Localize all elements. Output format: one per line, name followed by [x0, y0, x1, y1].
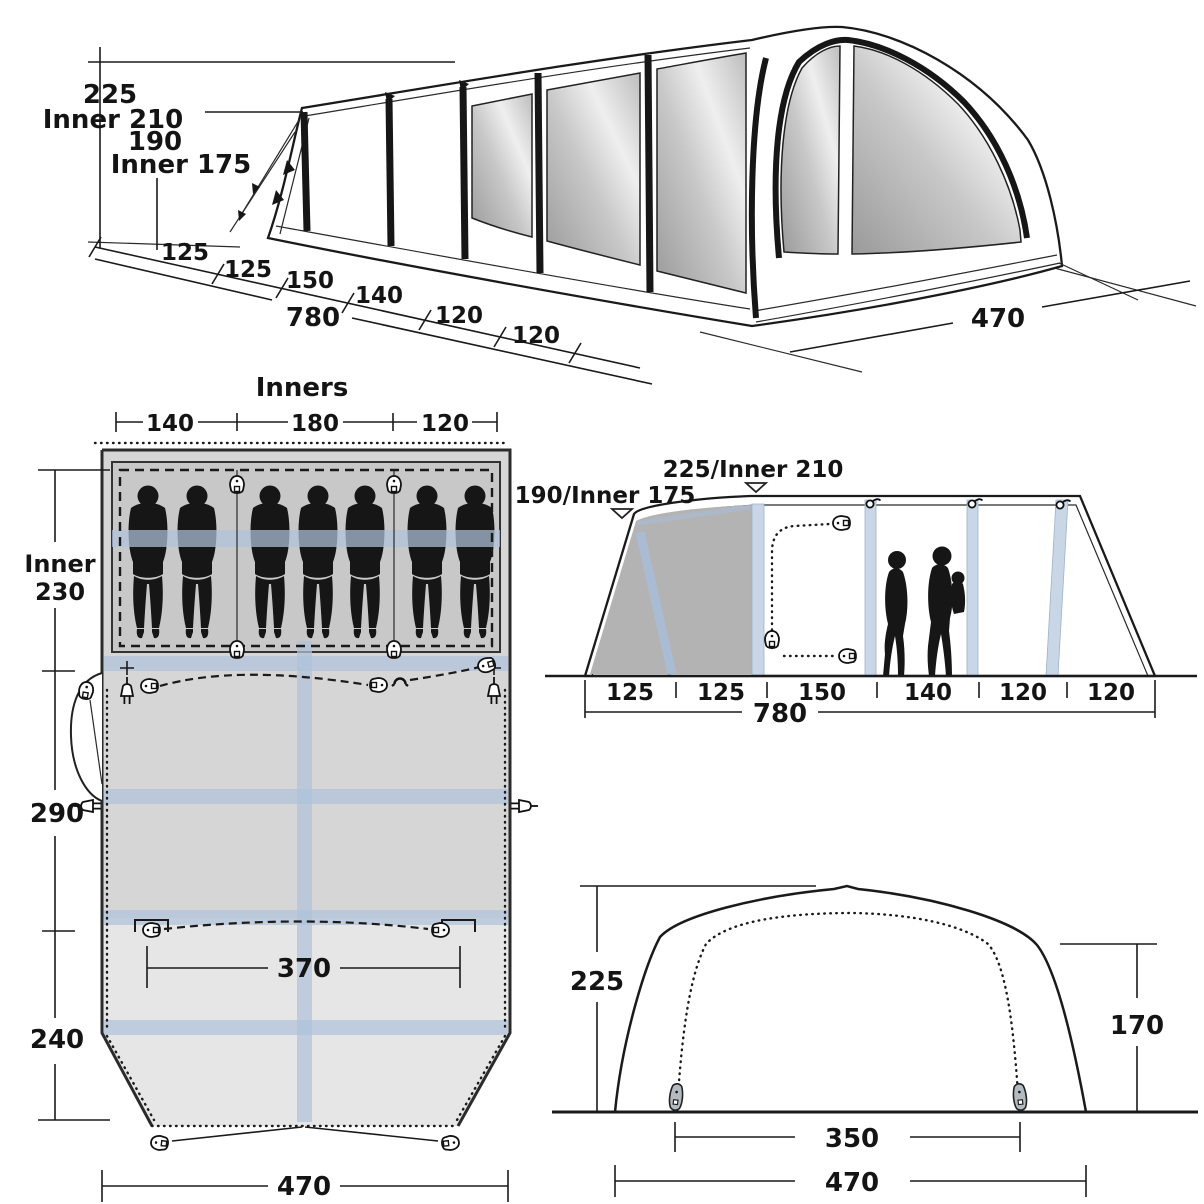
dim-label-inner-width: 120: [421, 411, 469, 437]
front-elevation-view: 225 170 350 470: [552, 886, 1198, 1198]
dim-label-living-depth: 290: [30, 799, 84, 829]
zipper-pull-icon: [143, 923, 160, 937]
side-window: [547, 73, 640, 265]
dim-label-height: 225: [570, 967, 624, 997]
dim-label-segment: 120: [512, 323, 560, 349]
side-window: [657, 53, 746, 293]
zipper-pull-icon: [833, 516, 850, 530]
dim-label-total-length: 780: [753, 699, 807, 729]
dim-label-front-height-inner: Inner 175: [111, 150, 251, 180]
air-beam: [538, 73, 540, 273]
zipper-pull-icon: [432, 923, 449, 937]
air-beam: [389, 99, 391, 246]
side-elevation-view: 190/Inner 175 225/Inner 210 125 125 150 …: [515, 457, 1197, 729]
air-beam-band: [967, 500, 978, 676]
power-plug-icon: [511, 800, 538, 812]
dim-label-segment: 120: [1087, 680, 1135, 706]
air-beam: [304, 112, 307, 231]
dim-label-inner-depth: Inner: [24, 550, 95, 578]
zipper-pull-icon: [387, 641, 401, 658]
ground-edge-line: [700, 332, 862, 372]
dim-label-wall-height: 170: [1110, 1011, 1164, 1041]
zipper-pull-icon: [441, 1135, 459, 1151]
front-zip-line: [172, 1127, 438, 1141]
dim-label-length: 780: [286, 303, 340, 333]
dim-label-porch-depth: 240: [30, 1025, 84, 1055]
dim-label-width: 470: [971, 304, 1025, 334]
dim-label-segment: 125: [224, 257, 272, 283]
zipper-pull-icon: [150, 1135, 168, 1151]
dim-label-total-width: 470: [277, 1172, 331, 1202]
dim-label-total-width: 470: [825, 1168, 879, 1198]
beam-band: [112, 530, 500, 547]
air-beam-band: [752, 504, 764, 676]
side-window: [472, 94, 532, 237]
label-front-peak-height: 190/Inner 175: [515, 483, 696, 509]
dim-label-segment: 140: [355, 283, 403, 309]
air-beam-band: [865, 500, 876, 676]
dim-label-segment: 120: [999, 680, 1047, 706]
zipper-pull-icon: [387, 476, 401, 493]
zipper-pull-icon: [839, 649, 856, 663]
dim-label-segment: 125: [161, 240, 209, 266]
label-main-peak-height: 225/Inner 210: [663, 457, 844, 483]
guy-arrow-icon: [238, 210, 246, 221]
dim-label-inner-width: 140: [146, 411, 194, 437]
zipper-pull-icon: [765, 631, 779, 648]
zipper-pull-icon: [230, 476, 244, 493]
perspective-view: 225 Inner 210 190 Inner 175 125 125 150 …: [43, 27, 1196, 384]
diagram-canvas: 225 Inner 210 190 Inner 175 125 125 150 …: [0, 0, 1204, 1204]
pointer-triangle-icon: [746, 483, 766, 492]
tent-specification-diagram: 225 Inner 210 190 Inner 175 125 125 150 …: [0, 0, 1204, 1204]
dim-label-door-width: 370: [277, 954, 331, 984]
dim-label-segment: 125: [697, 680, 745, 706]
front-silhouette: [615, 886, 1086, 1112]
zipper-pull-icon: [230, 641, 244, 658]
air-beam: [463, 87, 465, 259]
air-beam: [648, 55, 650, 292]
zipper-pull-icon: [370, 678, 387, 692]
pointer-triangle-icon: [612, 509, 632, 518]
zipper-pull-icon: [141, 679, 158, 693]
beam-band-vertical: [297, 641, 312, 1122]
dim-label-segment: 150: [286, 268, 334, 294]
dim-label-segment: 140: [904, 680, 952, 706]
guy-line: [1059, 263, 1138, 300]
inners-title: Inners: [256, 373, 349, 403]
dim-label-segment: 120: [435, 303, 483, 329]
dim-label-door-width: 350: [825, 1124, 879, 1154]
dim-label-segment: 125: [606, 680, 654, 706]
floor-plan-view: Inners 140 180 120 Inner 230 290 240 370…: [24, 373, 538, 1202]
dim-label-inner-width: 180: [291, 411, 339, 437]
dim-label-inner-depth-value: 230: [35, 578, 85, 606]
